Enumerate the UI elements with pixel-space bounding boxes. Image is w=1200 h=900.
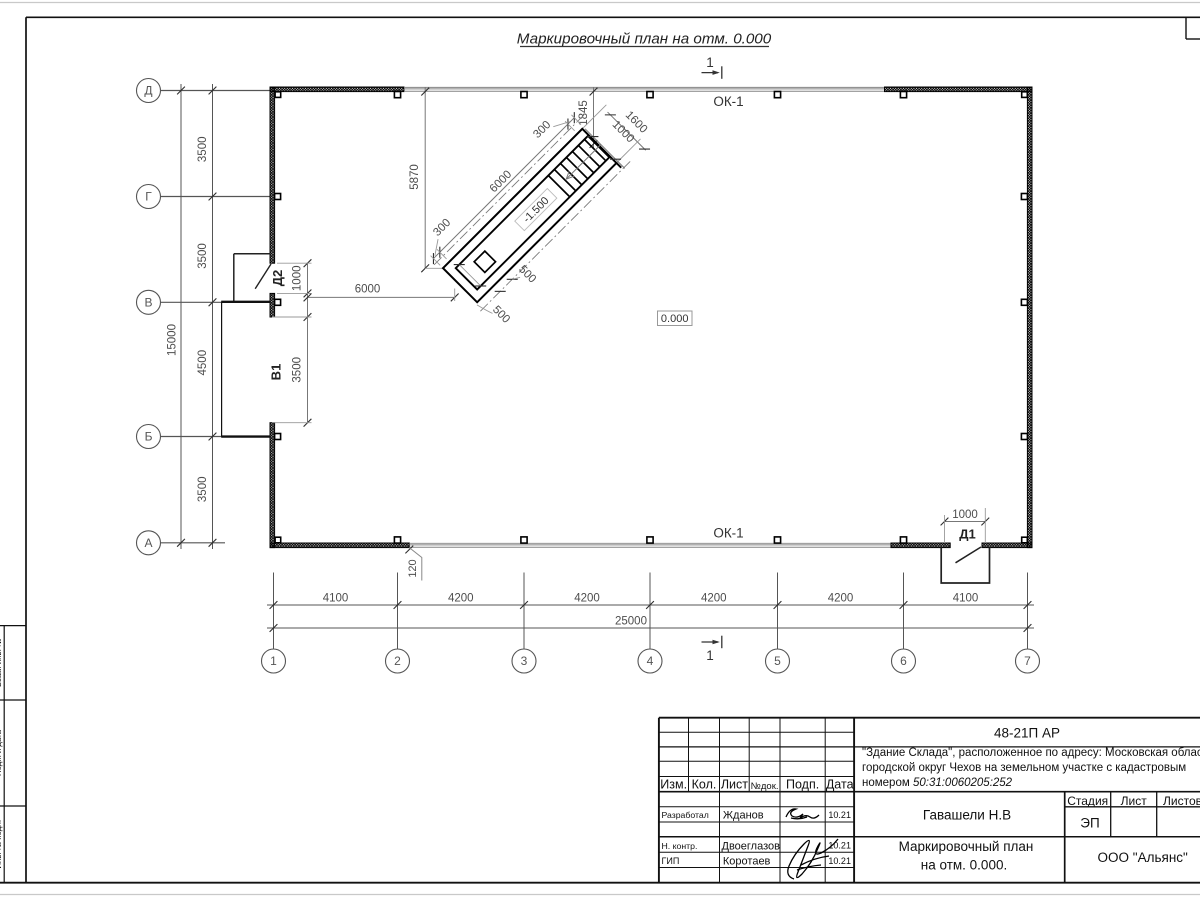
svg-text:Изм.: Изм. bbox=[660, 777, 687, 791]
svg-text:Гавашели Н.В: Гавашели Н.В bbox=[923, 808, 1011, 823]
svg-text:3500: 3500 bbox=[197, 243, 209, 269]
svg-text:3: 3 bbox=[521, 654, 528, 668]
svg-text:120: 120 bbox=[407, 559, 419, 577]
svg-text:на отм. 0.000.: на отм. 0.000. bbox=[921, 858, 1007, 873]
svg-text:15000: 15000 bbox=[167, 324, 179, 356]
svg-text:номером 50:31:0060205:252: номером 50:31:0060205:252 bbox=[862, 777, 1013, 789]
svg-text:городской округ Чехов на земел: городской округ Чехов на земельном участ… bbox=[862, 762, 1186, 774]
svg-text:1: 1 bbox=[706, 55, 714, 70]
svg-text:"Здание Склада", расположенное: "Здание Склада", расположенное по адресу… bbox=[862, 747, 1200, 759]
svg-text:3500: 3500 bbox=[197, 477, 209, 503]
svg-text:6000: 6000 bbox=[355, 284, 381, 296]
svg-text:ОК-1: ОК-1 bbox=[713, 94, 743, 109]
svg-text:Жданов: Жданов bbox=[723, 810, 764, 822]
svg-text:Лист: Лист bbox=[1121, 794, 1148, 808]
svg-text:Дата: Дата bbox=[826, 777, 854, 791]
svg-text:25000: 25000 bbox=[615, 616, 647, 628]
svg-text:Д: Д bbox=[144, 84, 152, 98]
svg-text:1: 1 bbox=[706, 648, 714, 663]
svg-text:Лист: Лист bbox=[721, 777, 748, 791]
svg-text:4100: 4100 bbox=[953, 593, 979, 605]
svg-text:В: В bbox=[144, 296, 152, 310]
svg-text:0.000: 0.000 bbox=[661, 313, 689, 325]
svg-text:Коротаев: Коротаев bbox=[723, 856, 771, 868]
svg-text:Листов: Листов bbox=[1163, 794, 1200, 808]
svg-text:А: А bbox=[144, 536, 152, 550]
svg-text:4200: 4200 bbox=[574, 593, 600, 605]
svg-text:ГИП: ГИП bbox=[662, 856, 680, 866]
svg-text:1000: 1000 bbox=[952, 509, 978, 521]
svg-text:ООО "Альянс": ООО "Альянс" bbox=[1098, 850, 1188, 865]
svg-text:Разработал: Разработал bbox=[662, 810, 709, 820]
svg-text:4: 4 bbox=[647, 654, 654, 668]
svg-text:1: 1 bbox=[270, 654, 277, 668]
svg-text:4500: 4500 bbox=[197, 350, 209, 376]
svg-text:10.21: 10.21 bbox=[828, 856, 851, 866]
svg-text:10.21: 10.21 bbox=[828, 810, 851, 820]
svg-text:4200: 4200 bbox=[701, 593, 727, 605]
svg-text:Г: Г bbox=[145, 190, 152, 204]
svg-text:4100: 4100 bbox=[323, 593, 349, 605]
svg-text:1000: 1000 bbox=[292, 266, 304, 292]
svg-text:ОК-1: ОК-1 bbox=[713, 526, 743, 541]
svg-text:В1: В1 bbox=[269, 364, 284, 381]
svg-text:Взам. инв. №: Взам. инв. № bbox=[0, 639, 3, 687]
svg-text:7: 7 bbox=[1024, 654, 1031, 668]
svg-text:Маркировочный план: Маркировочный план bbox=[899, 839, 1034, 854]
svg-text:№док.: №док. bbox=[751, 781, 779, 792]
svg-text:48-21П АР: 48-21П АР bbox=[994, 726, 1060, 741]
svg-text:Подп. и дата: Подп. и дата bbox=[0, 729, 3, 776]
svg-text:Кол.: Кол. bbox=[692, 777, 717, 791]
svg-text:3500: 3500 bbox=[197, 137, 209, 163]
svg-text:4200: 4200 bbox=[828, 593, 854, 605]
svg-text:3500: 3500 bbox=[292, 357, 304, 383]
svg-text:Н. контр.: Н. контр. bbox=[662, 841, 698, 851]
svg-text:4200: 4200 bbox=[448, 593, 474, 605]
svg-text:Маркировочный план на отм. 0.0: Маркировочный план на отм. 0.000 bbox=[517, 31, 772, 48]
svg-text:5: 5 bbox=[774, 654, 781, 668]
svg-text:5870: 5870 bbox=[409, 164, 421, 190]
svg-text:Двоеглазов: Двоеглазов bbox=[722, 840, 781, 852]
svg-text:ЭП: ЭП bbox=[1080, 816, 1099, 831]
svg-text:Д2: Д2 bbox=[270, 270, 285, 287]
svg-text:Д1: Д1 bbox=[959, 527, 976, 542]
svg-text:Инв. № подл.: Инв. № подл. bbox=[0, 820, 3, 869]
svg-text:Подп.: Подп. bbox=[786, 777, 819, 791]
svg-text:Стадия: Стадия bbox=[1067, 794, 1108, 808]
svg-text:Б: Б bbox=[145, 430, 153, 444]
svg-text:1845: 1845 bbox=[578, 100, 590, 126]
svg-text:2: 2 bbox=[394, 654, 401, 668]
svg-text:6: 6 bbox=[900, 654, 907, 668]
